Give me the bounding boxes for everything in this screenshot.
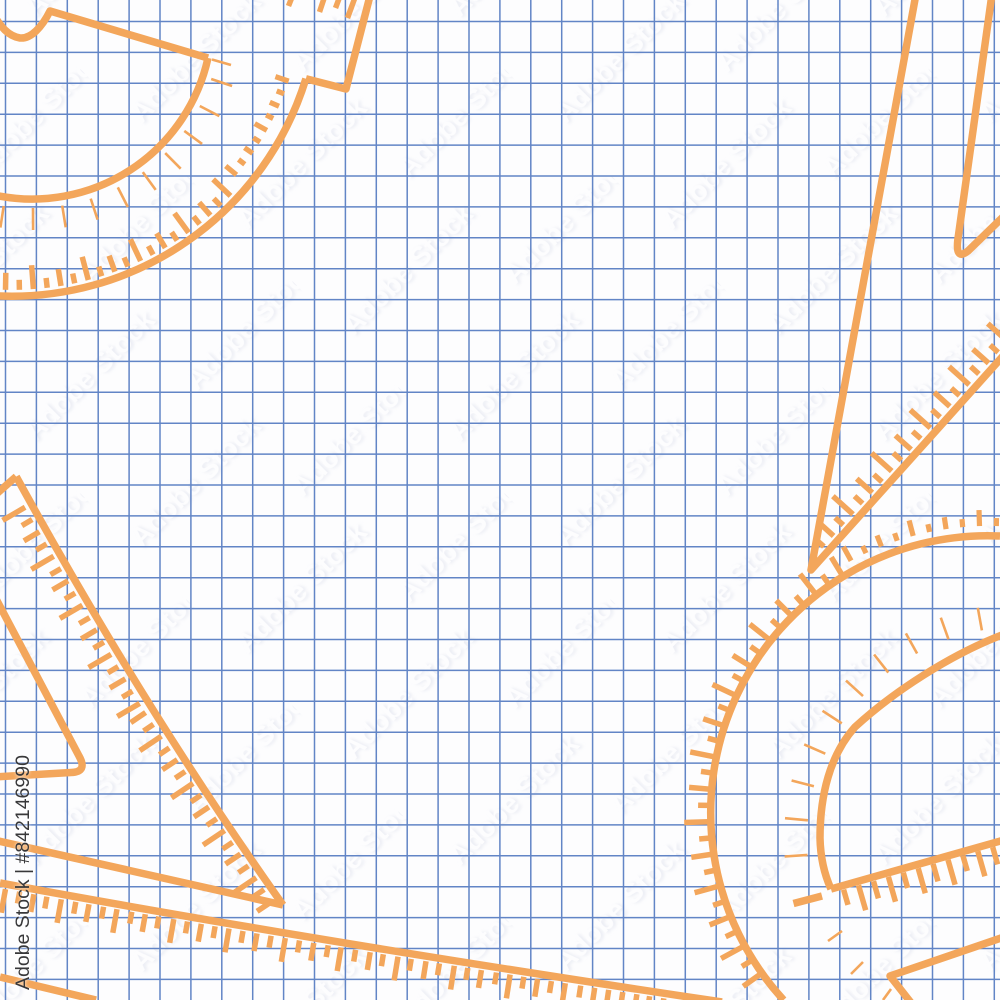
svg-text:Adobe Stock | #842146990: Adobe Stock | #842146990 [12, 755, 34, 990]
